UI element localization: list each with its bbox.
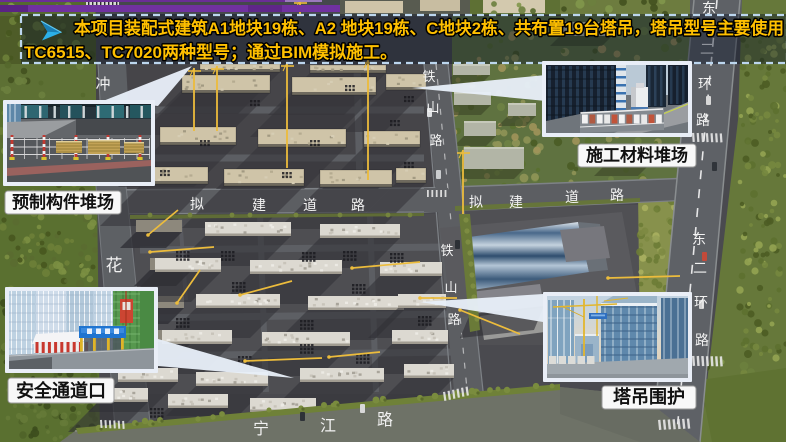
svg-text:本项目装配式建筑A1地块19栋、A2 地块19栋、C地块2栋: 本项目装配式建筑A1地块19栋、A2 地块19栋、C地块2栋、共布置19台塔吊，… [74,18,784,38]
svg-text:山: 山 [426,100,439,115]
svg-text:安全通道口: 安全通道口 [16,380,106,401]
svg-text:拟: 拟 [190,196,204,212]
svg-text:道: 道 [565,189,579,205]
svg-text:TC6515、TC7020两种型号；通过BIM模拟施工。: TC6515、TC7020两种型号；通过BIM模拟施工。 [24,42,397,62]
svg-text:路: 路 [695,332,709,348]
svg-text:铁: 铁 [422,69,435,84]
svg-text:东: 东 [702,0,716,16]
svg-text:路: 路 [377,411,393,429]
svg-text:花: 花 [106,256,123,275]
svg-text:塔吊围护: 塔吊围护 [613,386,685,407]
svg-text:二: 二 [693,260,707,276]
svg-text:山: 山 [444,280,457,295]
svg-text:江: 江 [320,417,336,435]
svg-text:路: 路 [429,133,442,148]
svg-text:环: 环 [698,76,712,92]
svg-text:铁: 铁 [440,243,453,258]
svg-text:拟: 拟 [469,194,483,210]
svg-text:路: 路 [351,197,365,213]
svg-text:建: 建 [509,194,523,210]
svg-text:宁: 宁 [253,420,269,438]
svg-text:东: 东 [692,231,706,247]
svg-text:施工材料堆场: 施工材料堆场 [586,145,688,165]
svg-text:预制构件堆场: 预制构件堆场 [12,192,114,212]
svg-text:路: 路 [696,112,710,128]
svg-text:建: 建 [252,197,266,213]
svg-text:路: 路 [447,312,460,327]
svg-text:环: 环 [694,294,708,310]
svg-text:路: 路 [610,187,624,203]
svg-text:道: 道 [303,197,317,213]
svg-text:冲: 冲 [95,76,110,93]
